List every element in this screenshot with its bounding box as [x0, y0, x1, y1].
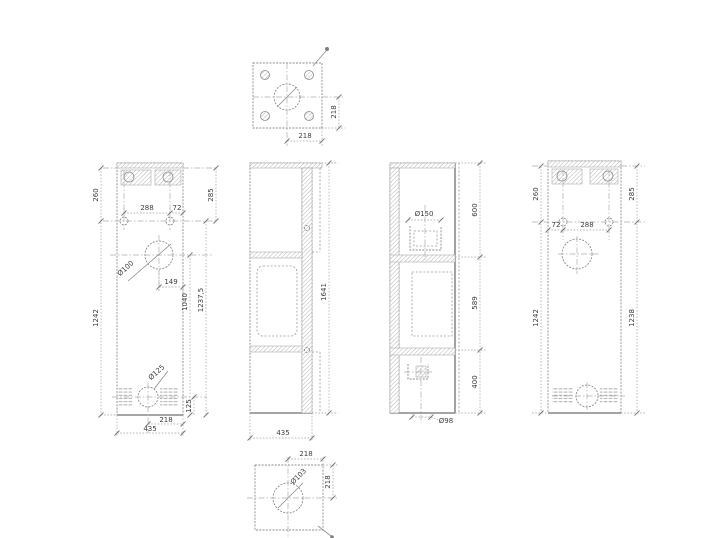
dim-label-285-front: 285 — [628, 187, 636, 200]
seam-hatch — [250, 346, 302, 352]
front-view: 260 285 72 288 1242 1238 — [532, 161, 645, 416]
seam-hatch — [250, 252, 302, 258]
dia103-leader — [278, 483, 303, 508]
dim-label-435-rear: 435 — [143, 425, 156, 433]
dim-label-288-front: 288 — [580, 221, 593, 229]
dia-label-98: Ø98 — [439, 417, 453, 425]
left-side-view: 1641 435 — [248, 161, 339, 442]
dim-label-top-height: 218 — [330, 105, 338, 118]
front-face-lines — [312, 168, 320, 413]
dim-ticks — [539, 164, 640, 416]
dim-label-1040: 1040 — [181, 293, 189, 311]
dim-label-600: 600 — [471, 203, 479, 216]
dim-label-288: 288 — [140, 204, 153, 212]
right-side-view: Ø150 600 589 400 Ø98 — [390, 161, 487, 426]
dim-label-1238-front: 1238 — [628, 309, 636, 327]
mount-hole-icon — [603, 171, 613, 181]
dim-label-400: 400 — [471, 375, 479, 388]
door-glass-outline — [257, 266, 297, 336]
mount-hole-icon — [557, 171, 567, 181]
dia-label-125: Ø125 — [147, 363, 166, 382]
dim-label-1242: 1242 — [92, 309, 100, 327]
leader-line — [313, 51, 326, 66]
top-view: 218 218 — [253, 47, 345, 146]
dim-label-72: 72 — [173, 204, 182, 212]
technical-drawing-canvas: 218 218 260 288 72 285 Ø100 149 1242 104… — [0, 0, 716, 538]
dim-label-1237-5: 1237,5 — [197, 288, 205, 313]
dia-label-150: Ø150 — [415, 210, 434, 218]
top-hatch-strip — [250, 163, 322, 168]
front-hatch-strip — [390, 168, 399, 413]
mount-hole-icon — [124, 172, 134, 182]
flue-collar-inner — [414, 231, 437, 246]
top-hatch-strip — [117, 163, 183, 168]
dim-label-1242-front: 1242 — [532, 309, 540, 327]
leader-marker-icon — [325, 47, 329, 51]
dimension-lines — [532, 166, 645, 413]
dim-label-435-side: 435 — [276, 429, 289, 437]
corner-screw-icon — [261, 71, 270, 80]
corner-screw-icon — [261, 112, 270, 121]
dim-label-260: 260 — [92, 188, 100, 201]
centerlines — [247, 457, 338, 538]
dimension-lines — [250, 163, 338, 441]
door-glass-outline — [412, 272, 452, 336]
dimension-lines — [287, 97, 345, 146]
rear-view: 260 288 72 285 Ø100 149 1242 1040 1237,5… — [92, 163, 219, 436]
stove-dimension-drawing: 218 218 260 288 72 285 Ø100 149 1242 104… — [0, 0, 716, 538]
front-hatch-strip — [302, 168, 312, 413]
front-view-outline — [548, 161, 621, 413]
dim-label-218-bottom-h: 218 — [324, 475, 332, 488]
dim-label-285: 285 — [207, 188, 215, 201]
corner-screw-icon — [305, 71, 314, 80]
leader-line — [318, 526, 331, 536]
dia-label-100: Ø100 — [116, 259, 135, 278]
top-hatch-strip — [548, 161, 621, 167]
bottom-view: 218 218 Ø103 — [247, 450, 338, 538]
dim-label-125: 125 — [185, 399, 193, 412]
seam-hatch — [390, 255, 455, 262]
dim-label-260-front: 260 — [532, 187, 540, 200]
mount-hole-icon — [163, 172, 173, 182]
top-hatch-strip — [390, 163, 455, 168]
vent-slats — [160, 388, 178, 407]
dim-label-1641: 1641 — [320, 283, 328, 301]
corner-screw-icon — [305, 112, 314, 121]
vent-slats — [118, 388, 132, 407]
dim-label-218-bottom-w: 218 — [299, 450, 312, 458]
dim-label-589: 589 — [471, 296, 479, 309]
dim-label-top-width: 218 — [298, 132, 311, 140]
centerlines — [532, 166, 645, 410]
dim-label-72-front: 72 — [552, 221, 561, 229]
dim-label-218-rear: 218 — [159, 416, 172, 424]
dia100-leader — [128, 244, 171, 281]
dim-ticks — [248, 161, 332, 441]
dia-label-103: Ø103 — [289, 467, 308, 486]
seam-hatch — [390, 348, 455, 355]
dim-label-149: 149 — [164, 278, 177, 286]
